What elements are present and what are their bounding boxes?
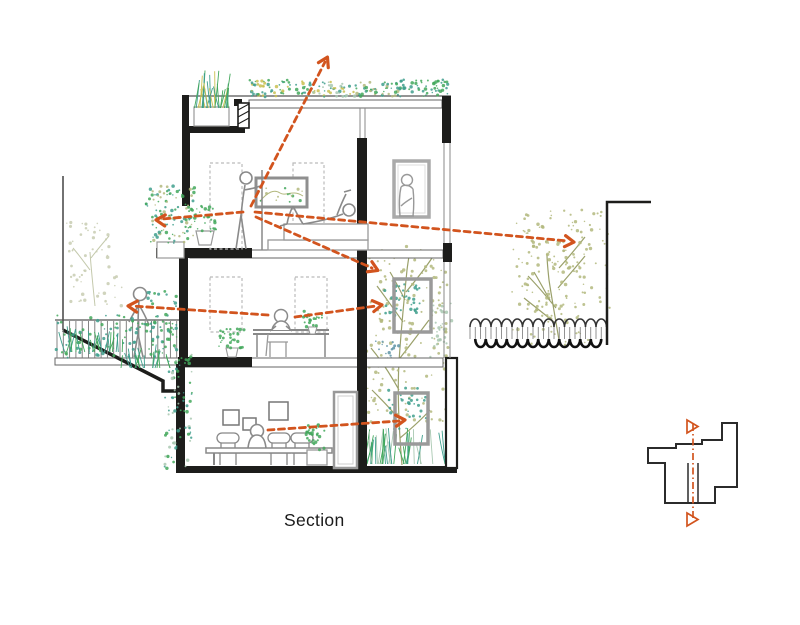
light-well-ferns [362,428,452,464]
floor-slabs [55,100,443,367]
parapet-planter-grass [194,71,230,109]
roof-garden-shrubs-1 [249,79,309,99]
roof-garden-shrubs-3 [354,81,401,98]
floor-plant-leaves [218,327,245,349]
slope-grass-1 [59,326,123,352]
roof-garden-shrubs-4 [399,79,449,98]
key-plan [648,420,737,526]
pedestal-plant [307,450,327,465]
light-well-leaves-teal-1 [383,283,420,317]
right-wall-lower-post [446,358,457,468]
courtyard-fence [470,319,607,347]
hatched-column [238,103,249,128]
bed [268,224,368,250]
parapet-planter-box [194,107,229,126]
left-neighbor-tree [73,236,109,306]
desk [253,330,329,357]
edge-planter-box [157,242,184,258]
left-neighbor-tree-leaves [66,221,123,308]
floor-plant-pot [226,348,238,357]
door-frame [334,392,357,468]
courtyard-tree-leaves-1 [511,209,610,310]
balcony-pot-plant [196,231,214,245]
light-well-leaves-lower [365,337,450,423]
rear-window-person [394,161,429,217]
neighbor-wall-right [607,202,651,345]
balcony-pot-plant-leaves [187,205,217,233]
dining-person [248,425,266,449]
desk-person [270,310,292,332]
desk-chair [266,334,288,357]
desk-plant-pot [308,327,317,334]
section-label: Section [284,510,344,531]
section-drawing-page: Section [0,0,800,625]
section-drawing [0,0,800,625]
